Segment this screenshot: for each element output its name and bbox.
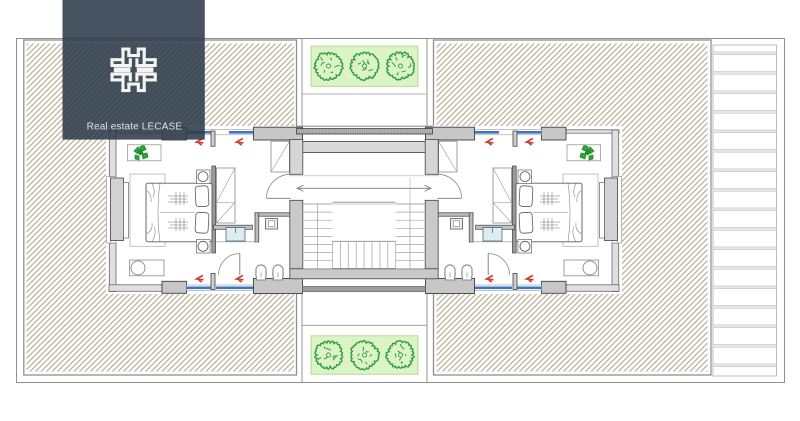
svg-text:Real estate LECASE: Real estate LECASE [87,121,183,132]
